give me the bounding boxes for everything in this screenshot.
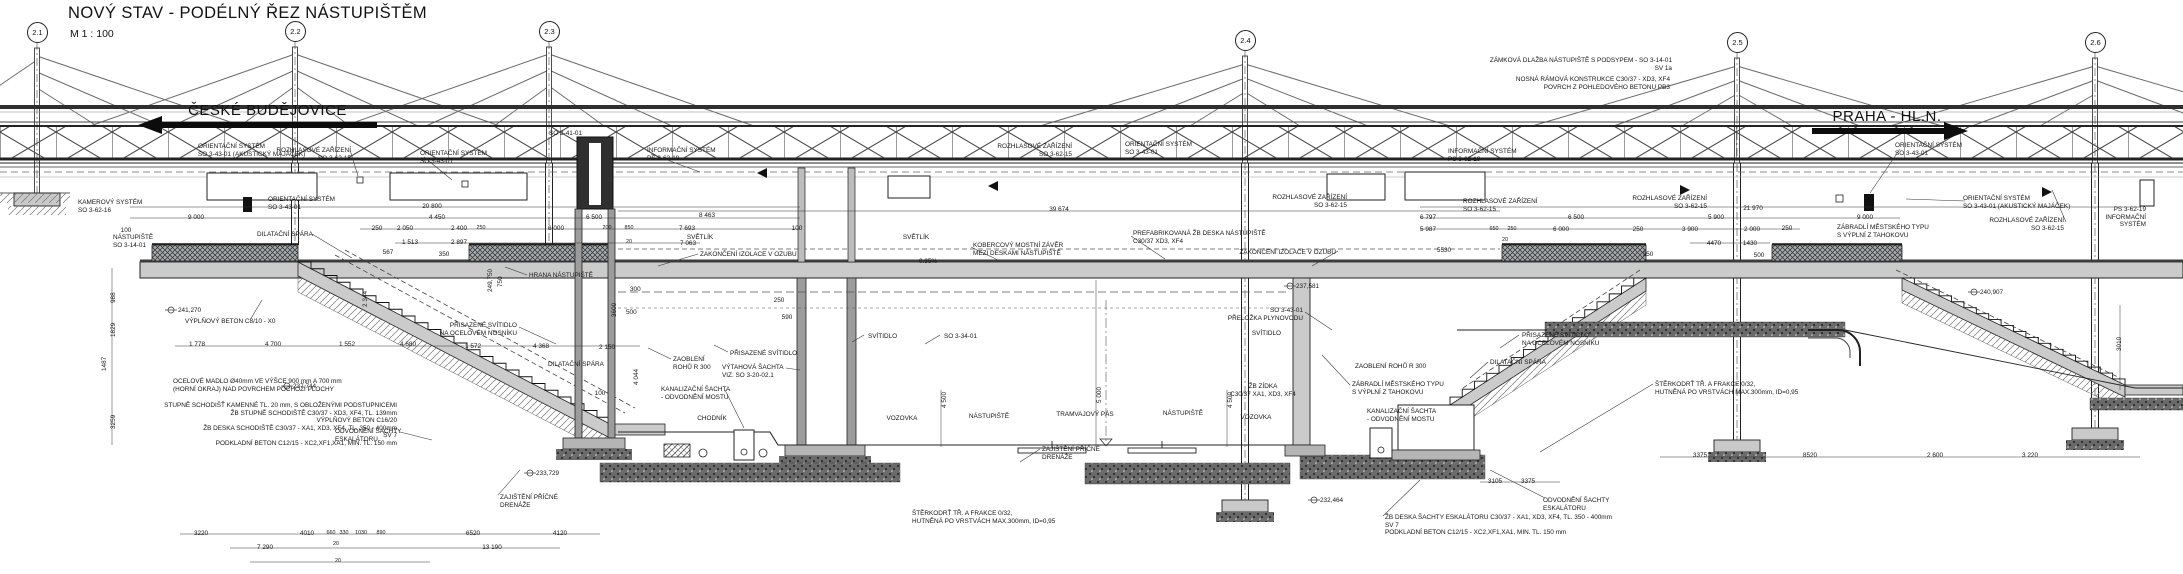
- dim-3375-b: 3375: [1521, 478, 1535, 486]
- dim-20-a: 20: [626, 239, 632, 245]
- dim-350-r: 350: [1643, 251, 1654, 259]
- zabradli-2: ZÁBRADLÍ MĚSTSKÉHO TYPU S VÝPLNÍ Z TAHOK…: [1837, 224, 1929, 239]
- orientation-totem-icon: [1864, 194, 1874, 211]
- elev-233-729: 233,729: [536, 470, 559, 478]
- prelozka-plynovodu: SO 3-43-01 PŘELOŽKA PLYNOVODU: [1228, 307, 1303, 322]
- elev-241-270: 241,270: [178, 307, 201, 315]
- utility-lines: [618, 292, 1293, 308]
- dim-1487: 1487: [101, 357, 109, 371]
- dim-2050: 2 050: [397, 225, 413, 233]
- nastupiste-2: NÁSTUPIŠTĚ: [1163, 410, 1203, 418]
- os-4: ORIENTAČNÍ SYSTÉM SO 3-43-01: [1125, 141, 1192, 156]
- dim-5900: 5 900: [1708, 214, 1724, 222]
- rozhlas-1: ROZHLASOVÉ ZAŘÍZENÍ SO 3-62-15: [276, 147, 351, 162]
- vozovka-2: VOZOVKA: [1241, 414, 1272, 422]
- dim-100-c: 100: [792, 225, 803, 233]
- drawing-sheet: NOVÝ STAV - PODÉLNÝ ŘEZ NÁSTUPIŠTĚM M 1 …: [0, 0, 2183, 574]
- rozhlas-3: ROZHLASOVÉ ZAŘÍZENÍ SO 3-62-15: [1272, 194, 1347, 209]
- dim-4500-1: 4 500: [941, 392, 949, 408]
- dim-6500-r: 6 500: [1568, 214, 1584, 222]
- dim-2400: 2 400: [451, 225, 467, 233]
- speaker-icon: [757, 168, 767, 178]
- dim-6500-l: 6 500: [586, 214, 602, 222]
- dim-6520: 6520: [466, 530, 480, 538]
- ocelove-madlo: OCELOVÉ MADLO Ø40mm VE VÝŠCE 900 mm A 70…: [173, 378, 342, 393]
- kanalizacni-sachta-2: KANALIZAČNÍ ŠACHTA - ODVODNĚNÍ MOSTU: [1367, 408, 1436, 423]
- pylon-axis-marker: 2.2: [285, 21, 306, 42]
- dim-3220-r: 3 220: [2022, 452, 2038, 460]
- manhole: [734, 430, 754, 460]
- dim-500-a: 500: [626, 309, 637, 317]
- vyplnovy-beton: VÝPLŇOVÝ BETON C8/10 - X0: [185, 318, 275, 326]
- speaker-icon: [988, 181, 998, 191]
- zakonceni-izolace-2: ZAKONČENÍ IZOLACE V OZUBU: [1239, 249, 1336, 257]
- direction-ceske-budejovice: ČESKÉ BUDĚJOVICE: [150, 102, 385, 128]
- drain-grate: [664, 444, 690, 457]
- kobercovy-zaver: KOBERCOVÝ MOSTNÍ ZÁVĚR MEZI DESKAMI NÁST…: [973, 242, 1063, 257]
- dim-650: 650: [1490, 226, 1499, 232]
- dim-2000: 2 000: [1744, 226, 1760, 234]
- elev-237-581: 237,581: [1296, 283, 1319, 291]
- kanalizacni-sachta-1: KANALIZAČNÍ ŠACHTA - ODVODNĚNÍ MOSTU: [661, 386, 730, 401]
- dim-988: 988: [110, 292, 118, 303]
- sterkodrt-2: ŠTĚRKODRŤ TŘ. A FRAKCE 0/32, HUTNĚNÁ PO …: [1655, 381, 1798, 396]
- prisazene-svitidlo-3: PŘISAZENÉ SVÍTIDLO NA OCELOVÉM NOSNÍKU: [1522, 332, 1599, 347]
- dim-250-a: 250: [372, 225, 383, 233]
- dilatacni-spara-2: DILATAČNÍ SPÁRA: [548, 361, 604, 369]
- dim-750: 750: [497, 276, 505, 287]
- dim-6797: 6 797: [1420, 214, 1436, 222]
- right-abutment: [1285, 278, 1325, 456]
- dim-4500-2: 4 500: [1227, 392, 1235, 408]
- vozovka-1: VOZOVKA: [887, 415, 918, 423]
- pylon-axis-marker: 2.1: [27, 22, 48, 43]
- dim-3010: 3010: [2116, 337, 2124, 351]
- dim-850: 850: [625, 225, 634, 231]
- zajisteni-drenaze-1: ZAJIŠTĚNÍ PŘÍČNÉ DRENÁŽE: [500, 494, 558, 509]
- dim-7063: 7 063: [680, 240, 696, 248]
- note-pavement: ZÁMKOVÁ DLAŽBA NÁSTUPIŠTĚ S PODSYPEM - S…: [1490, 57, 1672, 72]
- dim-8520: 8520: [1803, 452, 1817, 460]
- dim-2600: 2 600: [1927, 452, 1943, 460]
- prisazene-svitidlo-1: PŘISAZENÉ SVÍTIDLO NA OCELOVÉM NOSNÍKU: [440, 322, 517, 337]
- dim-3600: 3600: [611, 303, 619, 317]
- dim-1513: 1 513: [402, 239, 418, 247]
- dim-3900: 3 900: [1682, 226, 1698, 234]
- zb-deska-sachty: ŽB DESKA ŠACHTY ESKALÁTORU C30/37 - XA1,…: [1385, 514, 1612, 537]
- dim-567: 567: [383, 249, 394, 257]
- dim-2897: 2 897: [451, 239, 467, 247]
- tramvajovy-pas: TRAMVAJOVÝ PÁS: [1056, 411, 1113, 419]
- dim-1829: 1829: [110, 323, 118, 337]
- info-system-2: INFORMAČNÍ SYSTÉM PS 3-62-19: [1448, 148, 1517, 163]
- dim-250-e: 250: [1633, 226, 1644, 234]
- dim-350-l: 350: [439, 251, 450, 259]
- dim-590: 590: [782, 314, 793, 322]
- dim-7290: 7 290: [257, 544, 273, 552]
- dim-20-b: 20: [1502, 237, 1508, 243]
- elev-232-464: 232,464: [1320, 497, 1343, 505]
- so-3-34-01: SO 3-34-01: [944, 333, 977, 341]
- pylon-axis-marker: 2.3: [539, 21, 560, 42]
- dim-4680: 4 680: [400, 341, 416, 349]
- dim-5987: 5 987: [1420, 226, 1436, 234]
- dim-20-c: 20: [333, 541, 339, 547]
- os-2: ORIENTAČNÍ SYSTÉM SO 3-43-01: [420, 150, 487, 165]
- rozhlas-6: ROZHLASOVÉ ZAŘÍZENÍ SO 3-62-15: [1989, 217, 2064, 232]
- info-system-3: PS 3-62-19 INFORMAČNÍ SYSTÉM: [2106, 206, 2146, 229]
- svitidlo-1: SVÍTIDLO: [868, 333, 897, 341]
- dim-100-l: 100: [121, 227, 132, 235]
- speaker-icon: [1680, 185, 1690, 195]
- direction-praha: PRAHA - HL.N.: [1812, 108, 1962, 134]
- os-akusticky-right: ORIENTAČNÍ SYSTÉM SO 3-43-01 (AKUSTICKÝ …: [1963, 195, 2070, 210]
- dim-5530: 5530: [1437, 247, 1451, 255]
- dim-500-b: 500: [1754, 252, 1765, 260]
- dim-1572: 1 572: [465, 343, 481, 351]
- kamerovy-system: KAMEROVÝ SYSTÉM SO 3-62-16: [78, 199, 142, 214]
- zb-zidka: ŽB ZÍDKA C30/37 XA1, XD3, XF4: [1230, 383, 1296, 398]
- vytahova-sachta: VÝTAHOVÁ ŠACHTA VIZ. SO 3-20-02.1: [722, 364, 784, 379]
- nastupiste-so: NÁSTUPIŠTĚ SO 3-14-01: [113, 234, 153, 249]
- dim-250-d: 250: [1508, 226, 1517, 232]
- dilatacni-spara-3: DILATAČNÍ SPÁRA: [1490, 359, 1546, 367]
- chodnik: CHODNÍK: [697, 415, 726, 423]
- odvodneni-sachty-2: ODVODNĚNÍ ŠACHTY ESKALÁTORU: [1543, 497, 1609, 512]
- dim-300: 300: [630, 286, 641, 294]
- dim-4010: 4010: [300, 530, 314, 538]
- dim-20-d: 20: [335, 558, 341, 564]
- beacon-icon: [357, 177, 363, 183]
- right-arrow-icon: [1812, 128, 1944, 134]
- dim-6000-r: 6 000: [1553, 226, 1569, 234]
- dim-20800: 20 800: [422, 203, 442, 211]
- dim-9000-l: 9 000: [188, 214, 204, 222]
- dim-4044: 4 044: [633, 369, 641, 385]
- nastupiste-1: NÁSTUPIŠTĚ: [969, 413, 1009, 421]
- dim-250-b: 250: [477, 225, 486, 231]
- dim-660: 660: [327, 530, 336, 536]
- zajisteni-drenaze-2: ZAJIŠTĚNÍ PŘÍČNÉ DRENÁŽE: [1042, 446, 1100, 461]
- dim-250-c: 250: [774, 297, 785, 305]
- dim-100-b: 100: [595, 390, 606, 398]
- dim-1778: 1 778: [189, 341, 205, 349]
- dim-2344: 2 344: [362, 291, 370, 307]
- dim-200: 200: [603, 225, 612, 231]
- dim-1030: 1030: [355, 530, 367, 536]
- zaobleni-rohu-2: ZAOBLENÍ ROHŮ R 300: [1355, 363, 1426, 371]
- dim-2150: 2 150: [599, 344, 615, 352]
- elev-249-750: 249,750: [487, 269, 495, 292]
- rozhlas-2: ROZHLASOVÉ ZAŘÍZENÍ SO 3-62-15: [997, 143, 1072, 158]
- manhole: [1370, 428, 1392, 458]
- sterkodrt-1: ŠTĚRKODRŤ TŘ. A FRAKCE 0/32, HUTNĚNÁ PO …: [912, 510, 1055, 525]
- pylon-axis-marker: 2.6: [2085, 32, 2106, 53]
- rozhlas-4: ROZHLASOVÉ ZAŘÍZENÍ SO 3-62-15: [1463, 198, 1538, 213]
- dim-39674: 39 674: [1049, 206, 1069, 214]
- dim-890: 890: [377, 530, 386, 536]
- info-system-1: INFORMAČNÍ SYSTÉM PS 3-62-19: [647, 147, 716, 162]
- elev-240-907: 240,907: [1980, 289, 2003, 297]
- dim-3220-l: 3220: [194, 530, 208, 538]
- svetlik-2: SVĚTLÍK: [903, 234, 929, 242]
- so-3-41-01: SO 3-41-01: [549, 130, 582, 138]
- dim-250-f: 250: [1782, 225, 1793, 233]
- beacon-icon: [1836, 195, 1843, 202]
- hanging-signs: [207, 168, 2154, 212]
- spad: 0.35%: [919, 258, 937, 266]
- dim-8463: 8 463: [699, 212, 715, 220]
- pylon-axis-marker: 2.5: [1727, 32, 1748, 53]
- dim-9000-r: 9 000: [1857, 214, 1873, 222]
- elev-237-744: 237,744: [293, 383, 316, 391]
- dim-3259: 3259: [110, 415, 118, 429]
- dim-13190: 13 190: [482, 544, 502, 552]
- dim-1430: 1430: [1743, 240, 1757, 248]
- pylon-axis-marker: 2.4: [1235, 30, 1256, 51]
- os-5: ORIENTAČNÍ SYSTÉM SO 3-43-01: [1895, 142, 1962, 157]
- dim-5000: 5 000: [1096, 387, 1104, 403]
- elevator-shaft: [779, 168, 871, 467]
- dim-4368: 4 368: [533, 343, 549, 351]
- rozhlas-5: ROZHLASOVÉ ZAŘÍZENÍ SO 3-62-15: [1632, 195, 1707, 210]
- orientation-totem-icon: [243, 197, 252, 212]
- dim-3105: 3105: [1488, 478, 1502, 486]
- dim-3375-a: 3375: [1693, 452, 1707, 460]
- stairs-and-escalators: [298, 262, 2125, 454]
- dim-6000-l: 6 000: [548, 225, 564, 233]
- dim-7693: 7 693: [679, 225, 695, 233]
- zakonceni-izolace-1: ZAKONČENÍ IZOLACE V OZUBU: [700, 251, 797, 259]
- drawing-scale: M 1 : 100: [70, 28, 114, 40]
- prisazene-svitidlo-2: PŘISAZENÉ SVÍTIDLO: [730, 350, 797, 358]
- section-drawing: [0, 0, 2183, 574]
- dim-4470: 4470: [1707, 240, 1721, 248]
- hrana-nastupiste: HRANA NÁSTUPIŠTĚ: [529, 272, 593, 280]
- dilatacni-spara-1: DILATAČNÍ SPÁRA: [257, 231, 313, 239]
- zabradli-1: ZÁBRADLÍ MĚSTSKÉHO TYPU S VÝPLNÍ Z TAHOK…: [1352, 381, 1444, 396]
- dim-4120: 4120: [553, 530, 567, 538]
- zaobleni-rohu-1: ZAOBLENÍ ROHŮ R 300: [673, 356, 711, 371]
- note-frame: NOSNÁ RÁMOVÁ KONSTRUKCE C30/37 - XD3, XF…: [1516, 76, 1670, 91]
- dim-4450: 4 450: [429, 214, 445, 222]
- platform-deck: [140, 244, 2183, 278]
- dim-1552: 1 552: [339, 341, 355, 349]
- dim-21970: 21 970: [1743, 205, 1763, 213]
- dim-4700: 4 700: [265, 341, 281, 349]
- page-title: NOVÝ STAV - PODÉLNÝ ŘEZ NÁSTUPIŠTĚM: [68, 4, 427, 23]
- dim-330: 330: [340, 530, 349, 536]
- svitidlo-2: SVÍTIDLO: [1252, 330, 1281, 338]
- left-arrow-icon: [162, 122, 377, 128]
- os-3: ORIENTAČNÍ SYSTÉM SO 3-43-01: [268, 196, 335, 211]
- prefabrikovana-deska: PREFABRIKOVANÁ ŽB DESKA NÁSTUPIŠTĚ C30/3…: [1133, 230, 1266, 245]
- beacon-icon: [462, 181, 468, 187]
- odvodneni-sachty-1: ODVODNĚNÍ ŠACHTY ESKALÁTORU: [335, 428, 401, 443]
